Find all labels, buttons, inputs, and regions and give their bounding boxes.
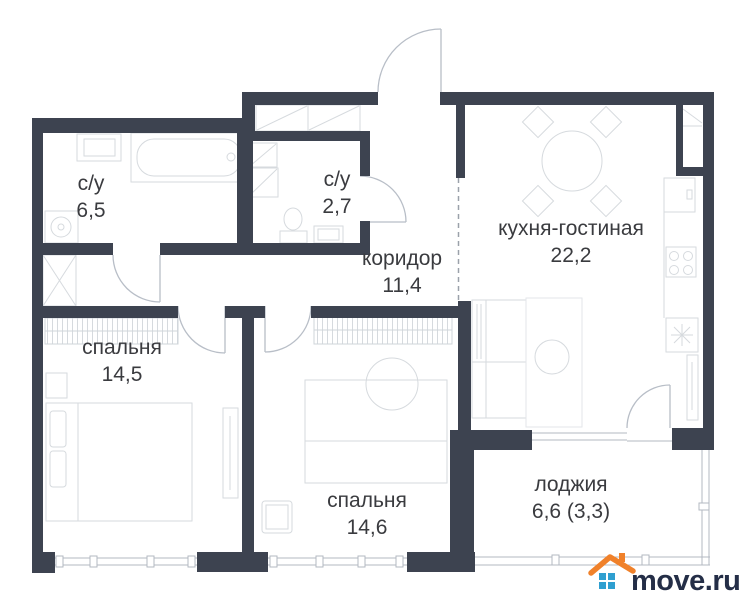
room-name: лоджия	[532, 471, 610, 498]
nightstand-bedroom1	[46, 373, 67, 398]
entry-wardrobe-icon	[256, 105, 360, 131]
room-label-loggia: лоджия 6,6 (3,3)	[532, 471, 610, 525]
room-area: 11,4	[362, 272, 442, 299]
entry-door	[378, 29, 441, 92]
bed-bedroom1	[46, 403, 192, 521]
small-sink-icon	[314, 226, 343, 243]
room-name: спальня	[82, 334, 162, 361]
mirror-bedroom1	[223, 408, 238, 498]
corridor-closet-icon	[43, 255, 76, 306]
loggia-door	[627, 385, 670, 428]
bedroom1-door	[178, 306, 225, 353]
window-bedroom1	[55, 556, 197, 567]
room-area: 14,5	[82, 361, 162, 388]
room-area: 14,6	[327, 514, 407, 541]
room-area: 6,6 (3,3)	[532, 498, 610, 525]
room-label-bedroom-2: спальня 14,6	[327, 487, 407, 541]
fridge-icon	[664, 178, 695, 212]
move-ru-logo: move.ru	[580, 543, 748, 598]
furniture-layer	[43, 105, 702, 533]
sofa-icon	[472, 300, 526, 418]
bedroom2-door	[265, 306, 311, 352]
window-bedroom2	[268, 556, 407, 567]
rug-outline	[526, 298, 582, 427]
room-name: коридор	[362, 245, 442, 272]
room-name: спальня	[327, 487, 407, 514]
washing-machine-icon	[45, 211, 78, 243]
vent-shaft-icon	[683, 109, 702, 126]
room-label-bedroom-1: спальня 14,5	[82, 334, 162, 388]
coffee-table-icon	[535, 340, 569, 374]
bathroom1-door	[113, 255, 160, 302]
bathtub-icon	[131, 133, 247, 182]
room-name: с/у	[322, 166, 351, 193]
room-label-corridor: коридор 11,4	[362, 245, 442, 299]
room-label-bathroom-2: с/у 2,7	[322, 166, 351, 220]
stove-icon	[666, 247, 696, 277]
toilet-icon	[280, 208, 307, 243]
room-area: 2,7	[322, 193, 351, 220]
dining-table-icon	[522, 106, 621, 216]
room-area: 6,5	[76, 197, 105, 224]
sink-icon	[77, 134, 121, 161]
window-kitchen-loggia	[532, 433, 672, 441]
room-name: кухня-гостиная	[498, 215, 644, 242]
room-name: с/у	[76, 170, 105, 197]
room-area: 22,2	[498, 242, 644, 269]
room-label-kitchen-living: кухня-гостиная 22,2	[498, 215, 644, 269]
bed-bedroom2	[305, 358, 447, 483]
logo-text: move.ru	[631, 565, 740, 598]
tv-console-icon	[687, 355, 698, 420]
kitchen-sink-icon	[666, 318, 698, 352]
bathroom2-door	[360, 176, 406, 222]
nightstand-bedroom2	[262, 501, 292, 533]
floor-plan: с/у 6,5 с/у 2,7 коридор 11,4 кухня-гости…	[0, 0, 748, 600]
room-label-bathroom-1: с/у 6,5	[76, 170, 105, 224]
